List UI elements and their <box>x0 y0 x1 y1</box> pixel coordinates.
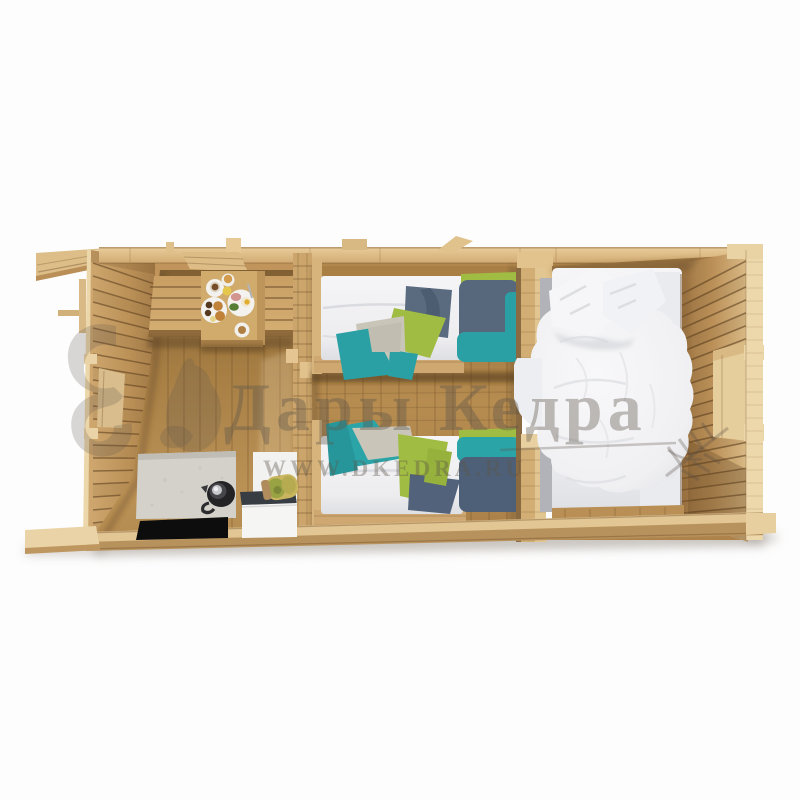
svg-text:Дары Кедра: Дары Кедра <box>224 369 647 445</box>
svg-text:WWW.DKEDRA.RU: WWW.DKEDRA.RU <box>263 456 526 481</box>
